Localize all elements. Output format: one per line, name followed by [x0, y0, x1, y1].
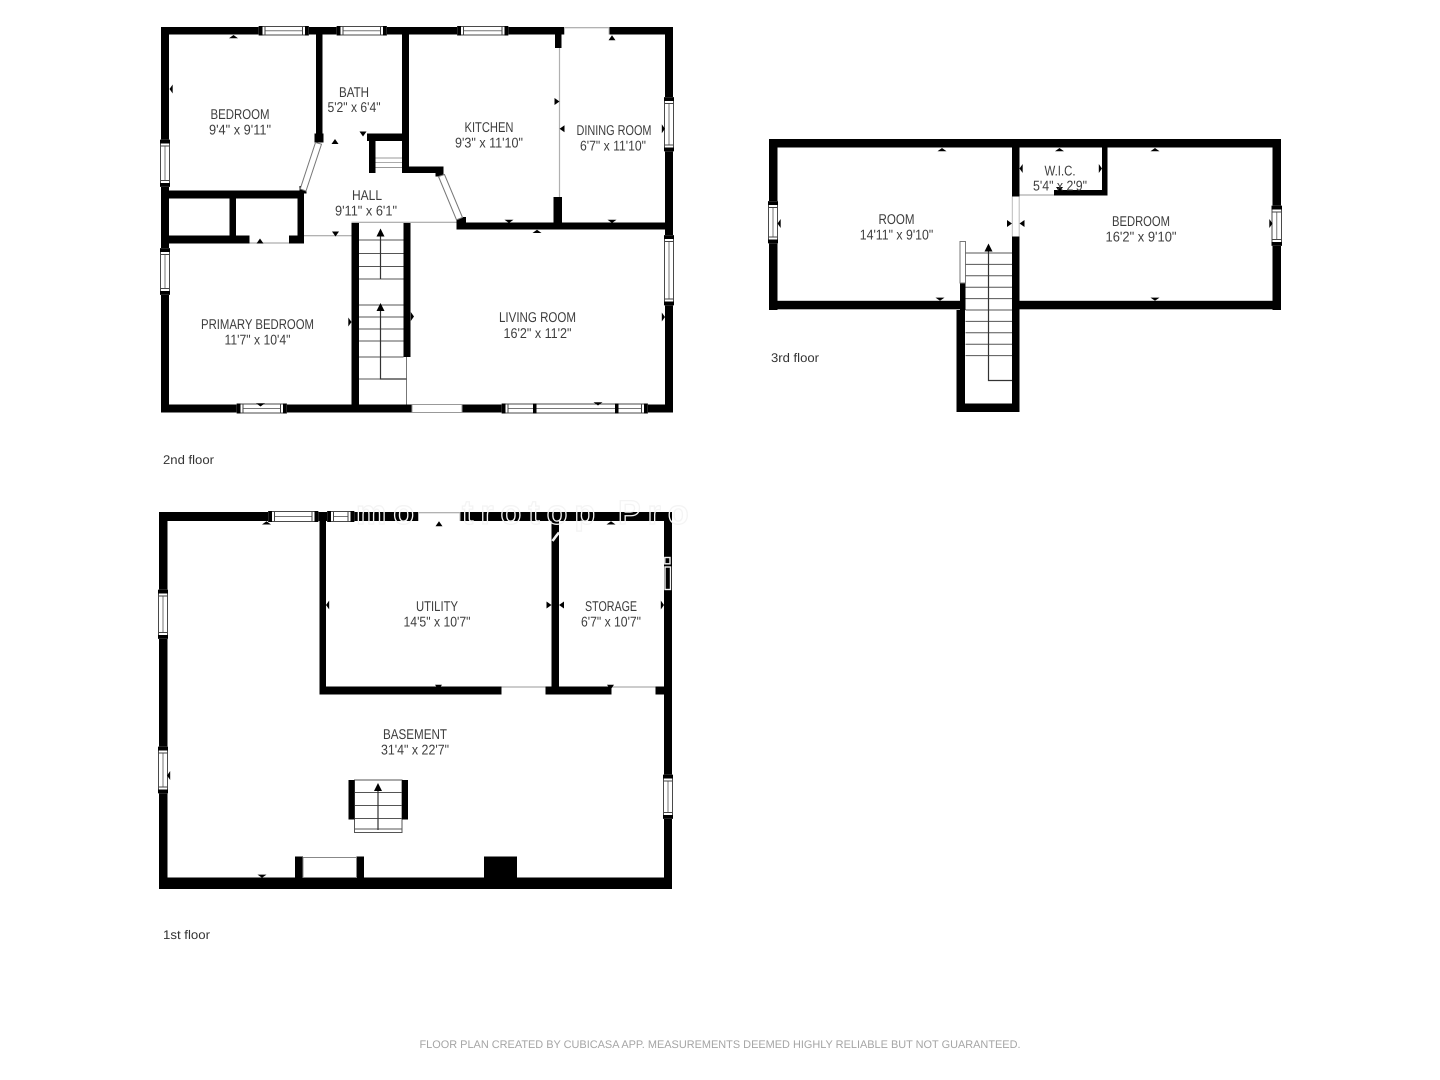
- svg-text:16'2" x 9'10": 16'2" x 9'10": [1106, 230, 1177, 246]
- svg-text:6'7" x 11'10": 6'7" x 11'10": [580, 139, 646, 155]
- svg-text:9'11" x 6'1": 9'11" x 6'1": [335, 204, 397, 220]
- svg-text:14'11" x 9'10": 14'11" x 9'10": [860, 228, 934, 244]
- svg-text:trotop: trotop: [462, 494, 602, 532]
- svg-text:BASEMENT: BASEMENT: [383, 727, 447, 743]
- svg-text:Pro: Pro: [618, 494, 696, 532]
- svg-text:5'2" x 6'4": 5'2" x 6'4": [328, 100, 381, 116]
- svg-text:BEDROOM: BEDROOM: [211, 107, 270, 123]
- svg-text:HALL: HALL: [352, 188, 382, 204]
- svg-text:2nd floor: 2nd floor: [163, 453, 214, 467]
- svg-text:DINING ROOM: DINING ROOM: [577, 123, 652, 139]
- svg-text:KITCHEN: KITCHEN: [465, 120, 514, 136]
- svg-text:PRIMARY BEDROOM: PRIMARY BEDROOM: [201, 317, 314, 333]
- svg-text:11'7" x 10'4": 11'7" x 10'4": [225, 333, 291, 349]
- svg-text:1st floor: 1st floor: [163, 928, 210, 942]
- svg-text:31'4" x 22'7": 31'4" x 22'7": [381, 743, 449, 759]
- svg-text:ROOM: ROOM: [879, 212, 915, 228]
- svg-text:BATH: BATH: [339, 85, 369, 101]
- svg-text:FLOOR PLAN CREATED BY CUBICASA: FLOOR PLAN CREATED BY CUBICASA APP. MEAS…: [420, 1039, 1021, 1051]
- svg-text:16'2" x 11'2": 16'2" x 11'2": [504, 326, 572, 342]
- svg-text:BEDROOM: BEDROOM: [1112, 214, 1170, 230]
- svg-text:LIVING ROOM: LIVING ROOM: [499, 310, 576, 326]
- svg-text:9'3" x 11'10": 9'3" x 11'10": [455, 136, 523, 152]
- svg-text:5'4" x 2'9": 5'4" x 2'9": [1033, 179, 1087, 195]
- svg-text:mo: mo: [356, 494, 421, 532]
- svg-text:W.I.C.: W.I.C.: [1045, 164, 1076, 180]
- svg-text:3rd floor: 3rd floor: [771, 351, 819, 365]
- svg-text:STORAGE: STORAGE: [585, 599, 637, 615]
- svg-text:UTILITY: UTILITY: [416, 599, 458, 615]
- svg-text:6'7" x 10'7": 6'7" x 10'7": [581, 615, 641, 631]
- svg-text:14'5" x 10'7": 14'5" x 10'7": [404, 615, 471, 631]
- svg-text:9'4" x 9'11": 9'4" x 9'11": [209, 123, 271, 139]
